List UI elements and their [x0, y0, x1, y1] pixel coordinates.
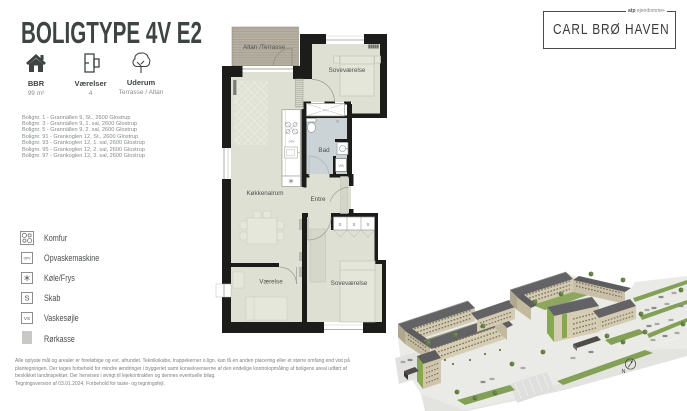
svg-text:Soveværelse: Soveværelse: [331, 280, 368, 287]
svg-text:Bad: Bad: [318, 147, 330, 154]
svg-text:Værelse: Værelse: [259, 279, 283, 286]
svg-text:OPV: OPV: [289, 140, 295, 144]
svg-text:S: S: [352, 222, 355, 227]
svg-text:Køkkenalrum: Køkkenalrum: [246, 190, 283, 197]
svg-text:Soveværelse: Soveværelse: [329, 67, 366, 74]
svg-text:VS: VS: [338, 163, 344, 168]
svg-text:VS: VS: [24, 316, 30, 321]
svg-text:S: S: [24, 294, 29, 303]
svg-text:OPV: OPV: [24, 257, 32, 261]
svg-text:Seng: Seng: [322, 108, 329, 112]
svg-text:S: S: [338, 222, 341, 227]
svg-text:Entre: Entre: [310, 196, 326, 203]
svg-text:Altan /Terrasse: Altan /Terrasse: [243, 44, 285, 51]
svg-text:S: S: [366, 222, 369, 227]
svg-text:N: N: [622, 369, 626, 375]
